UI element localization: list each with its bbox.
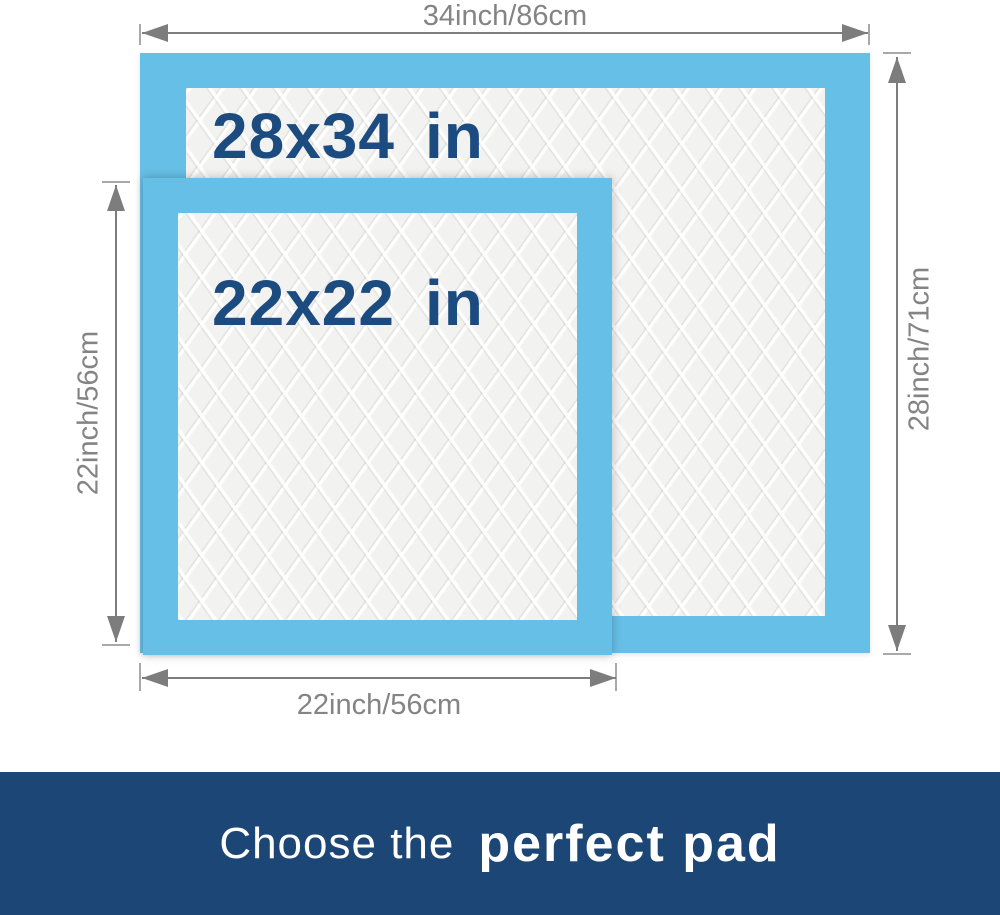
dimension-top-line (142, 32, 868, 34)
dimension-top-left-tick (139, 24, 141, 45)
pad-large-size-unit: in (425, 100, 484, 172)
pad-small-size-unit: in (425, 267, 484, 339)
pad-small-quilted-surface: 22x22in (178, 213, 577, 620)
dimension-left-line (115, 185, 117, 642)
arrowhead-right-icon (590, 669, 616, 687)
pad-size-comparison-figure: 28x34in 22x22in 34inch/86cm 28inch/71cm (0, 0, 1000, 915)
pad-large-size-value: 28x34 (212, 100, 395, 172)
arrowhead-up-icon (888, 57, 906, 83)
dimension-right-label: 28inch/71cm (906, 267, 935, 431)
arrowhead-down-icon (888, 625, 906, 651)
dimension-right-top-tick (883, 52, 911, 54)
arrowhead-left-icon (142, 669, 168, 687)
banner: Choose the perfect pad (0, 772, 1000, 915)
dimension-left-label: 22inch/56cm (75, 331, 104, 495)
dimension-right-line (896, 57, 898, 651)
dimension-left-top-tick (102, 181, 130, 183)
pad-small-size-label: 22x22in (212, 271, 484, 335)
dimension-bottom-line (142, 677, 616, 679)
arrowhead-down-icon (107, 616, 125, 642)
dimension-top-label: 34inch/86cm (423, 2, 587, 31)
dimension-left-bottom-tick (102, 644, 130, 646)
arrowhead-left-icon (142, 24, 168, 42)
pad-small: 22x22in (143, 178, 612, 655)
dimension-right-bottom-tick (883, 653, 911, 655)
arrowhead-right-icon (842, 24, 868, 42)
banner-text-lead: Choose the (219, 819, 454, 869)
dimension-top-right-tick (868, 24, 870, 45)
dimension-bottom-left-tick (139, 663, 141, 691)
arrowhead-up-icon (107, 185, 125, 211)
pad-small-size-value: 22x22 (212, 267, 395, 339)
pad-large-size-label: 28x34in (212, 104, 484, 168)
dimension-bottom-label: 22inch/56cm (297, 691, 461, 720)
banner-text-emphasis: perfect pad (478, 814, 780, 874)
